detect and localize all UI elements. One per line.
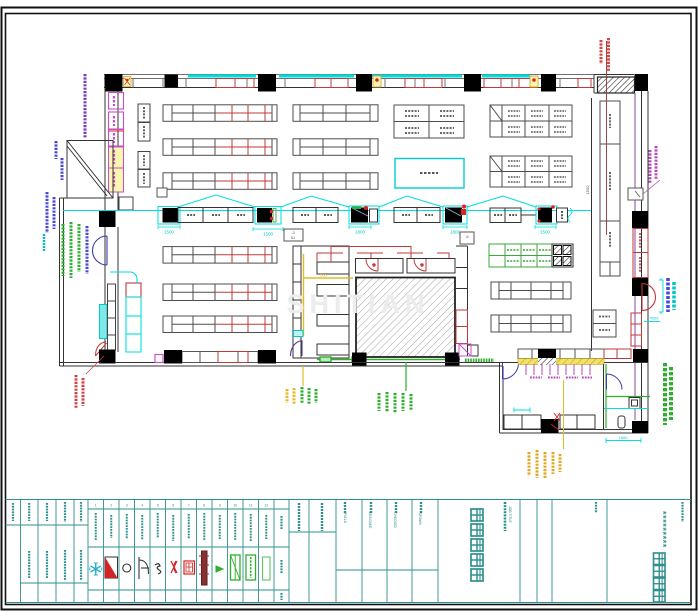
svg-text:CHECKED: CHECKED — [393, 512, 397, 528]
svg-text:51: 51 — [291, 236, 295, 240]
svg-text:1800: 1800 — [355, 230, 366, 235]
svg-text:12: 12 — [264, 504, 268, 508]
svg-text:-3: -3 — [291, 231, 294, 235]
svg-text:JOB TITLE: JOB TITLE — [508, 506, 512, 523]
svg-text:1600: 1600 — [619, 435, 629, 440]
svg-text:1: 1 — [95, 504, 97, 508]
svg-text:2: 2 — [110, 504, 112, 508]
svg-text:5: 5 — [157, 504, 159, 508]
svg-text:1500: 1500 — [585, 185, 590, 195]
svg-text:PULLD: PULLD — [343, 513, 347, 524]
svg-text:3: 3 — [126, 504, 128, 508]
svg-text:7: 7 — [188, 504, 190, 508]
svg-text:1800: 1800 — [450, 230, 461, 235]
svg-text:6: 6 — [172, 504, 174, 508]
svg-text:-6: -6 — [465, 235, 468, 239]
svg-text:11: 11 — [249, 504, 253, 508]
svg-text:1500: 1500 — [263, 232, 274, 237]
svg-text:1500: 1500 — [164, 230, 175, 235]
svg-text:9: 9 — [219, 504, 221, 508]
svg-text:300: 300 — [320, 273, 327, 278]
svg-text:4: 4 — [141, 504, 143, 508]
svg-text:8: 8 — [203, 504, 205, 508]
svg-text:10: 10 — [233, 504, 237, 508]
svg-text:4500: 4500 — [650, 316, 660, 321]
svg-text:SHITIAN: SHITIAN — [287, 289, 430, 319]
svg-text:DESIGNED: DESIGNED — [368, 512, 372, 529]
svg-text:DRAWN: DRAWN — [418, 513, 422, 526]
svg-text:1500: 1500 — [540, 230, 551, 235]
svg-text:*********: ********* — [658, 511, 668, 548]
